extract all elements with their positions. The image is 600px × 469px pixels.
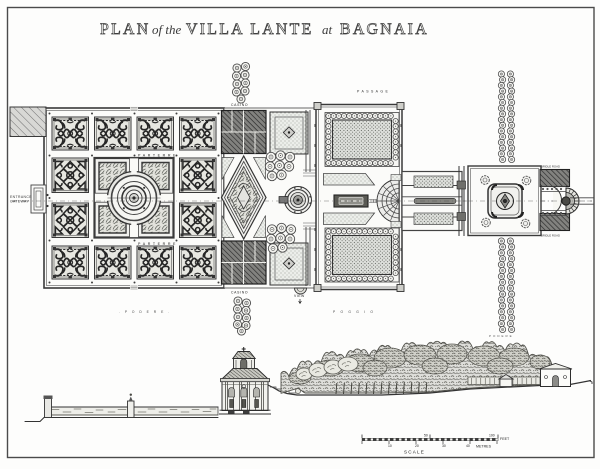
- svg-text:GATEWAY: GATEWAY: [10, 200, 29, 204]
- svg-text:30: 30: [442, 444, 446, 448]
- svg-text:PODERE: PODERE: [489, 334, 514, 338]
- svg-text:BRIDLE ROAD: BRIDLE ROAD: [541, 234, 560, 238]
- svg-text:P O G G I O: P O G G I O: [333, 310, 375, 314]
- svg-text:PARTERRE: PARTERRE: [138, 154, 178, 158]
- svg-text:10: 10: [388, 444, 392, 448]
- svg-text:FEET: FEET: [500, 437, 510, 441]
- svg-text:VILLA LANTE: VILLA LANTE: [186, 21, 314, 38]
- svg-text:at: at: [322, 22, 333, 37]
- svg-text:CASINO: CASINO: [231, 291, 248, 295]
- svg-text:CASINO: CASINO: [231, 103, 248, 107]
- svg-text:BAGNAIA: BAGNAIA: [340, 21, 429, 38]
- svg-text:SCALE: SCALE: [404, 450, 425, 455]
- svg-text:of the: of the: [152, 22, 181, 37]
- svg-text:ENTRANCE: ENTRANCE: [10, 195, 32, 199]
- svg-text:BRIDLE ROAD: BRIDLE ROAD: [541, 165, 560, 169]
- svg-text:50: 50: [424, 434, 428, 438]
- svg-text:40: 40: [466, 444, 470, 448]
- svg-text:PLAN: PLAN: [100, 21, 150, 38]
- svg-text:100: 100: [489, 434, 495, 438]
- svg-text:METRES: METRES: [476, 445, 492, 449]
- svg-text:. P O D E R E .: . P O D E R E .: [119, 310, 171, 314]
- svg-text:VIEW: VIEW: [294, 294, 305, 298]
- svg-text:PASSAGE: PASSAGE: [357, 90, 390, 94]
- svg-text:20: 20: [415, 444, 419, 448]
- svg-text:PARTERRE: PARTERRE: [138, 242, 178, 246]
